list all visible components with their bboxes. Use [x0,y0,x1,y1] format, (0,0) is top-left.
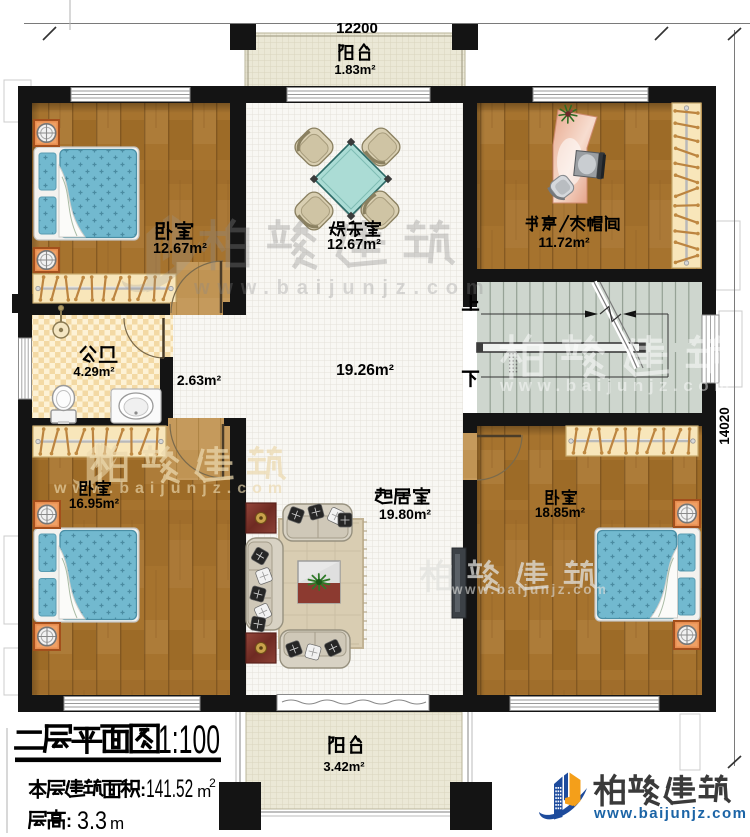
svg-text:www.baijunjz.com: www.baijunjz.com [193,277,491,299]
svg-text:m: m [110,814,124,833]
svg-text:www.baijunjz.com: www.baijunjz.com [451,582,609,597]
svg-text:19.26m²: 19.26m² [336,362,394,379]
svg-text:14020: 14020 [717,407,732,445]
svg-text:www.baijunjz.com: www.baijunjz.com [53,480,288,497]
svg-text:1:100: 1:100 [158,718,220,762]
svg-text:www.baijunjz.com: www.baijunjz.com [593,805,747,822]
svg-text:18.85m²: 18.85m² [535,505,586,520]
svg-text:19.80m²: 19.80m² [379,506,431,522]
svg-text:16.95m²: 16.95m² [69,496,120,511]
svg-text:3.42m²: 3.42m² [323,759,365,774]
svg-text:4.29m²: 4.29m² [73,364,115,379]
svg-text::: : [66,811,72,831]
svg-text:www.baijunjz.com: www.baijunjz.com [499,376,735,395]
svg-text:12200: 12200 [336,20,378,37]
svg-text:12.67m²: 12.67m² [153,241,207,257]
svg-text:141.52: 141.52 [146,775,193,803]
svg-text:12.67m²: 12.67m² [327,237,381,253]
svg-text:1.83m²: 1.83m² [334,62,376,77]
svg-text:3.3: 3.3 [77,807,107,835]
svg-text:2.63m²: 2.63m² [177,372,222,388]
svg-text:2: 2 [209,776,216,790]
svg-text:11.72m²: 11.72m² [538,234,590,250]
